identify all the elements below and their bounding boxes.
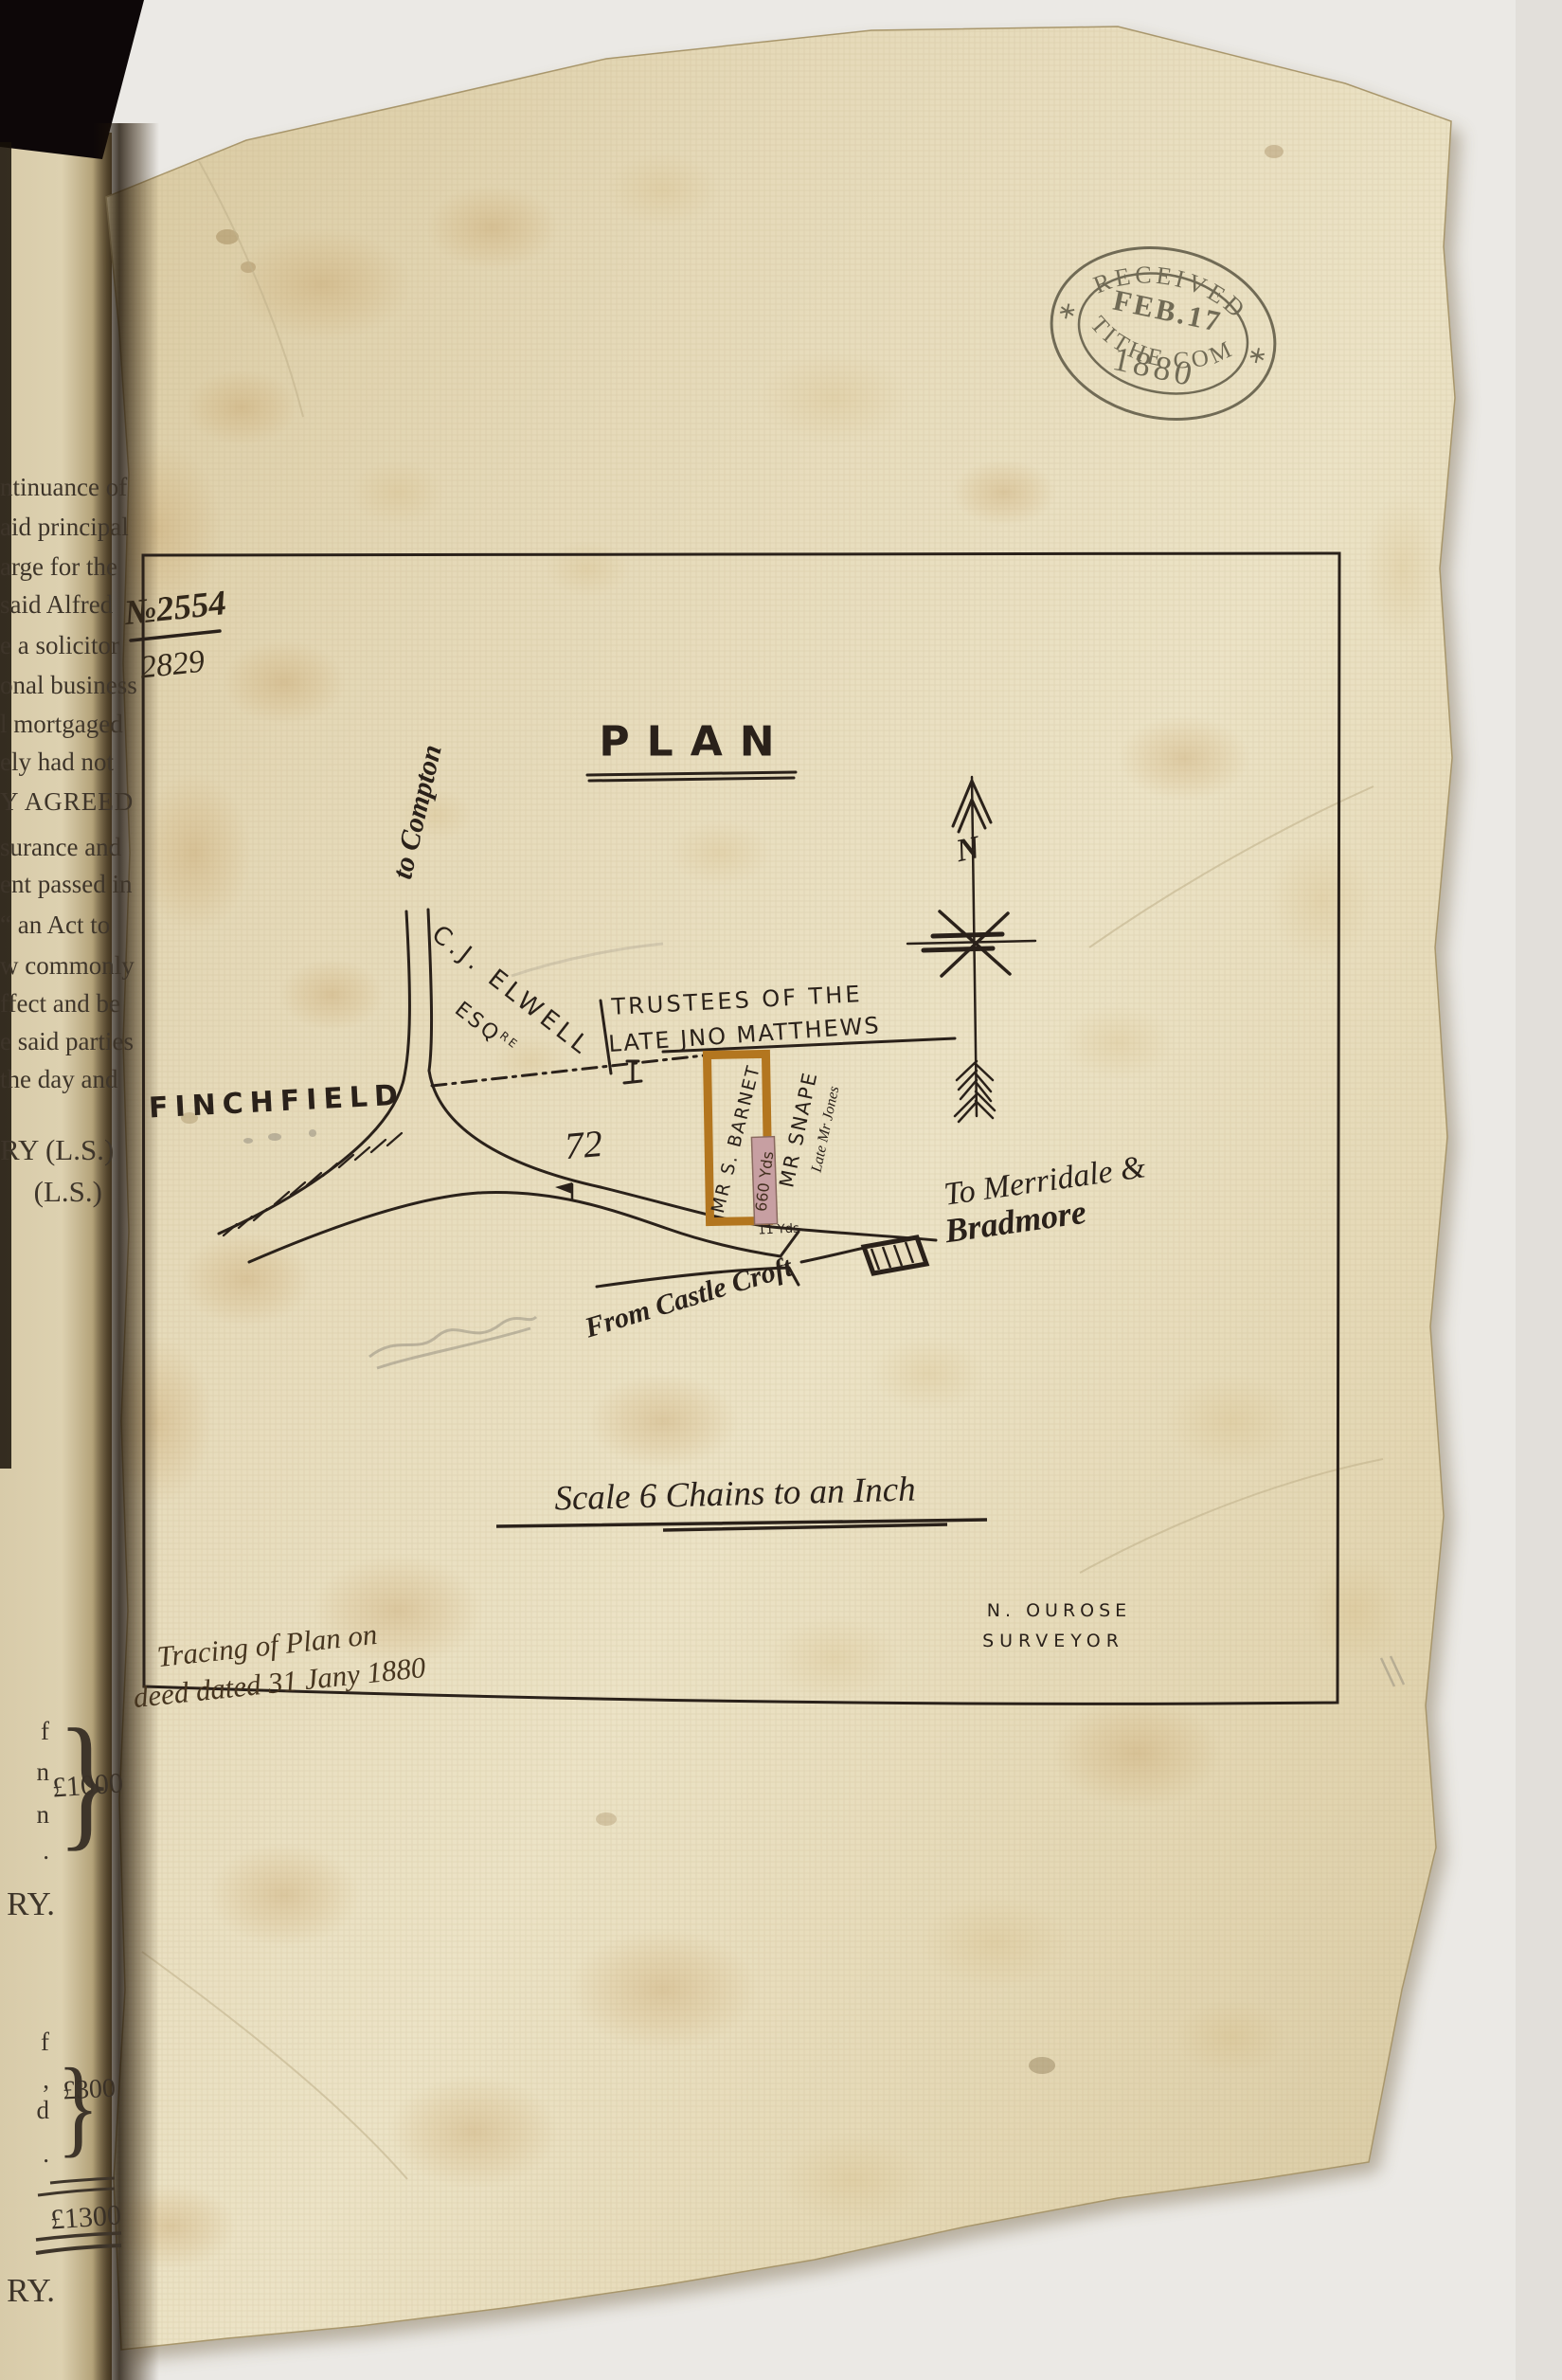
plan-drawing-layer: RECEIVED TITHE COM FEB.17 1880 bbox=[0, 0, 1562, 2380]
left-page-fragment: , bbox=[0, 2065, 49, 2095]
left-page-signature: RY. bbox=[0, 1885, 55, 1923]
left-page-fragment: . bbox=[0, 2139, 49, 2169]
left-page-fragment: e said parties bbox=[0, 1027, 102, 1056]
left-page-fragment: ent passed in bbox=[0, 870, 102, 899]
sum-1000: £1000 bbox=[51, 1767, 124, 1804]
left-page-fragment: ffect and be bbox=[0, 989, 102, 1019]
left-page-fragment: aid principal bbox=[0, 513, 102, 542]
left-page-signature: (L.S.) bbox=[0, 1175, 102, 1209]
label-parcel-number: 72 bbox=[563, 1121, 604, 1168]
left-page-fragment: w commonly bbox=[0, 951, 102, 981]
left-page-fragment: arge for the bbox=[0, 552, 102, 582]
left-page-signature: RY. bbox=[0, 2272, 55, 2310]
sum-total-1300: £1300 bbox=[49, 2199, 122, 2236]
scanned-document-page: RECEIVED TITHE COM FEB.17 1880 №2554 282… bbox=[0, 0, 1562, 2380]
left-page-fragment: “ an Act to bbox=[0, 911, 102, 940]
building bbox=[864, 1237, 926, 1273]
backdrop-right-shade bbox=[1516, 0, 1562, 2380]
ref-number-bottom: 2829 bbox=[138, 644, 206, 687]
left-page-fragment: . bbox=[0, 1836, 49, 1866]
left-page-fragment: the day and bbox=[0, 1065, 102, 1094]
left-page-fragment: n bbox=[0, 1758, 49, 1787]
left-page-fragment: f bbox=[0, 1717, 49, 1746]
left-page-fragment: n bbox=[0, 1800, 49, 1830]
left-page-fragment: said Alfred bbox=[0, 590, 102, 620]
left-page-fragment: f bbox=[0, 2028, 49, 2057]
left-page-fragment: ely had not bbox=[0, 748, 102, 777]
label-frontage: 11 Yds bbox=[758, 1221, 799, 1237]
plan-title: PLAN bbox=[599, 718, 791, 766]
left-page-fragment: onal business bbox=[0, 671, 102, 700]
left-page-signature: RY (L.S.) bbox=[0, 1133, 102, 1167]
left-page-fragment: Y AGREED bbox=[0, 787, 102, 817]
sum-300: £300 bbox=[62, 2074, 117, 2107]
left-page-fragment: l mortgaged bbox=[0, 710, 102, 739]
left-page-fragment: e a solicitor bbox=[0, 631, 102, 660]
gutter-shadow bbox=[93, 123, 159, 2380]
surveyor-title: SURVEYOR bbox=[982, 1631, 1124, 1651]
surveyor-name: N. OUROSE bbox=[987, 1600, 1131, 1621]
left-page-fragment: surance and bbox=[0, 833, 102, 862]
left-page-fragment: d bbox=[0, 2096, 49, 2125]
left-page-fragment: ntinuance of bbox=[0, 473, 102, 502]
